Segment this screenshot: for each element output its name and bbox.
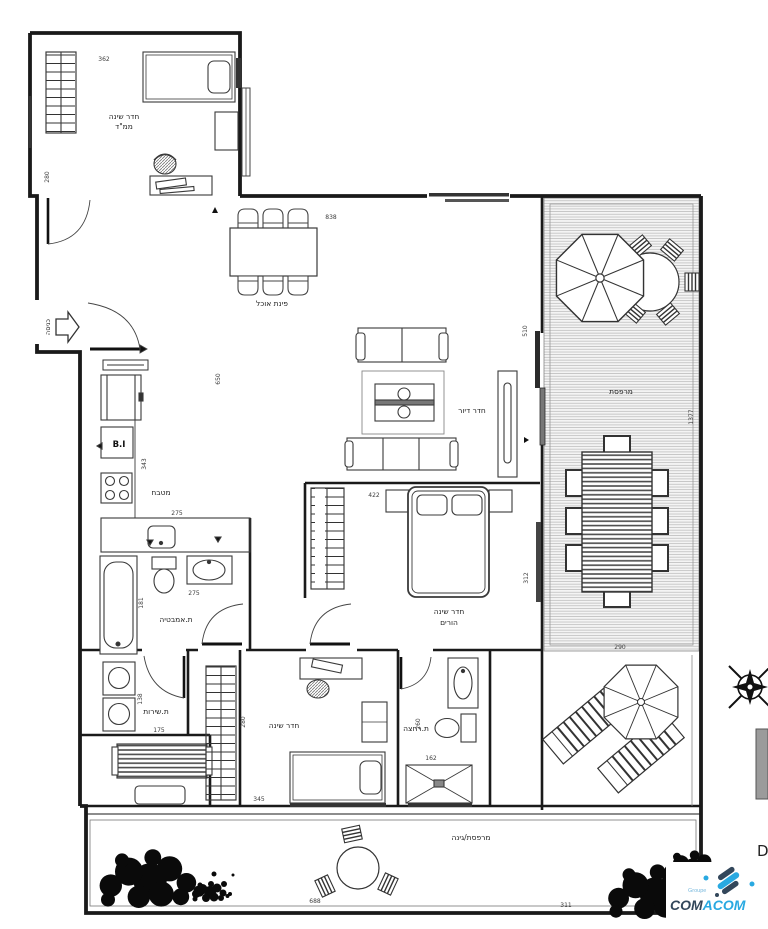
dim-shower-width: 162 — [425, 755, 437, 762]
label-service: ת.שירות — [143, 707, 169, 716]
counter-sink — [101, 518, 250, 552]
floor-plan-svg: חדר שינה ממ"ד פינת אוכל חדר דיור מטבח ת.… — [0, 0, 768, 929]
logo-acom: ACOM — [702, 897, 746, 913]
washer — [103, 662, 135, 695]
nightstand-right — [489, 490, 512, 512]
dim-master-width: 422 — [368, 492, 380, 499]
kitchen-furniture — [97, 375, 250, 552]
lounger-terrace — [543, 665, 684, 793]
bedroom2-furniture — [206, 658, 387, 803]
dim-mamad-width: 362 — [98, 56, 110, 63]
hall-closet — [206, 666, 236, 800]
bathroom-furniture — [100, 556, 232, 654]
dining-chair — [288, 276, 308, 295]
wardrobe — [46, 52, 76, 133]
dining-furniture — [212, 207, 317, 295]
shelf2 — [362, 702, 387, 742]
double-bed — [408, 487, 489, 597]
garden-chair — [378, 873, 398, 895]
umbrella — [556, 234, 643, 321]
dim-shower-height: 260 — [415, 718, 422, 730]
condenser-unit — [135, 786, 185, 804]
garden-plants-left — [100, 849, 235, 908]
logo-groupe-text: Groupe — [688, 888, 706, 894]
desk-chair — [154, 154, 176, 174]
label-living: חדר דיור — [458, 406, 486, 415]
dim-garden-width: 688 — [309, 898, 321, 905]
entrance-marker — [56, 312, 79, 342]
shower-sink — [448, 658, 478, 708]
label-master-1: חדר שינה — [434, 607, 465, 616]
label-letter-d: D — [757, 842, 768, 860]
label-bedroom2: חדר שינה — [269, 721, 300, 730]
dim-kitchen-counter: 275 — [171, 510, 183, 517]
garden-chair — [342, 825, 363, 842]
compass-rose — [729, 666, 768, 708]
dim-bath-height: 181 — [138, 597, 145, 609]
single-bed — [143, 52, 235, 102]
dim-terrace-width: 290 — [614, 644, 626, 651]
shower-toilet — [435, 714, 476, 742]
entry-door — [88, 303, 148, 370]
dim-bath-width: 275 — [188, 590, 200, 597]
bath-sink — [187, 556, 232, 584]
dining-chair — [263, 276, 283, 295]
room-mamad-furniture — [46, 52, 238, 195]
comacom-logo-text: COMACOM — [670, 897, 746, 913]
sliding-door — [524, 331, 545, 445]
dining-chair — [238, 276, 258, 295]
logo-com: COM — [670, 897, 703, 913]
label-garden: מרפסת/גינה — [451, 833, 490, 842]
dim-marker — [212, 207, 218, 213]
dining-chair — [263, 209, 283, 228]
nightstand-left — [386, 490, 409, 512]
dim-bedroom2-height: 280 — [240, 716, 247, 728]
coffee-table — [375, 384, 434, 421]
dim-bedroom2-width: 345 — [253, 796, 265, 803]
single-bed2 — [290, 752, 385, 803]
logo-block: Groupe COMACOM — [666, 862, 768, 929]
dim-top-wall: 838 — [325, 214, 337, 221]
dim-service-height: 138 — [137, 693, 144, 705]
tv-cabinet — [498, 371, 517, 477]
desk2-chair — [307, 680, 329, 698]
dining-table — [230, 228, 317, 276]
garden-furniture — [100, 825, 725, 919]
label-entrance: כניסה — [44, 318, 52, 335]
master-wardrobe — [311, 488, 344, 589]
garden-chair — [315, 875, 335, 897]
label-built-in: B.I — [113, 440, 126, 450]
dim-living-height: 650 — [215, 373, 222, 385]
bathroom-door — [202, 604, 243, 644]
label-mamad-1: חדר שינה — [109, 112, 140, 121]
umbrella2 — [604, 665, 678, 739]
nightstand — [215, 112, 238, 150]
louver-unit — [112, 744, 212, 778]
master-furniture — [311, 487, 512, 597]
dining-chair — [238, 209, 258, 228]
toilet — [152, 557, 176, 593]
slider-arrow-icon — [524, 437, 529, 443]
dim-garden-right: 311 — [560, 902, 572, 909]
terrace-chair — [685, 273, 699, 291]
dim-marker — [215, 537, 221, 542]
dim-kitchen-height: 343 — [141, 458, 148, 470]
sofa-three-seat — [345, 438, 458, 470]
dim-mamad-height: 280 — [44, 171, 51, 183]
mamad-door — [48, 198, 90, 244]
garden-table — [337, 847, 379, 889]
label-bathroom: ת.אמבטיה — [159, 615, 192, 624]
label-master-2: הורים — [440, 618, 458, 627]
dim-slider: 510 — [522, 325, 529, 337]
shower-tray — [406, 765, 472, 803]
entrance-arrow-icon — [56, 312, 79, 342]
stove — [101, 473, 132, 503]
label-terrace: מרפסת — [609, 387, 633, 396]
bi-arrow-icon — [97, 443, 102, 449]
sofa-two-seat — [356, 328, 448, 362]
dining-chair — [288, 209, 308, 228]
floor-plan-canvas: חדר שינה ממ"ד פינת אוכל חדר דיור מטבח ת.… — [0, 0, 768, 929]
dryer — [103, 698, 135, 731]
label-dining: פינת אוכל — [256, 299, 288, 308]
fridge — [101, 375, 143, 420]
dim-service-width: 175 — [153, 727, 165, 734]
dim-master-height: 312 — [523, 572, 530, 584]
living-furniture — [345, 328, 517, 477]
master-door — [310, 604, 351, 644]
desk2 — [300, 658, 362, 679]
shower-door — [401, 657, 431, 689]
label-kitchen: מטבח — [151, 488, 170, 497]
gray-block — [756, 729, 768, 799]
dim-terrace-height: 1377 — [688, 409, 695, 424]
desk — [150, 176, 212, 195]
label-mamad-2: ממ"ד — [115, 122, 133, 131]
service-door — [144, 656, 184, 698]
bathtub — [100, 556, 137, 654]
